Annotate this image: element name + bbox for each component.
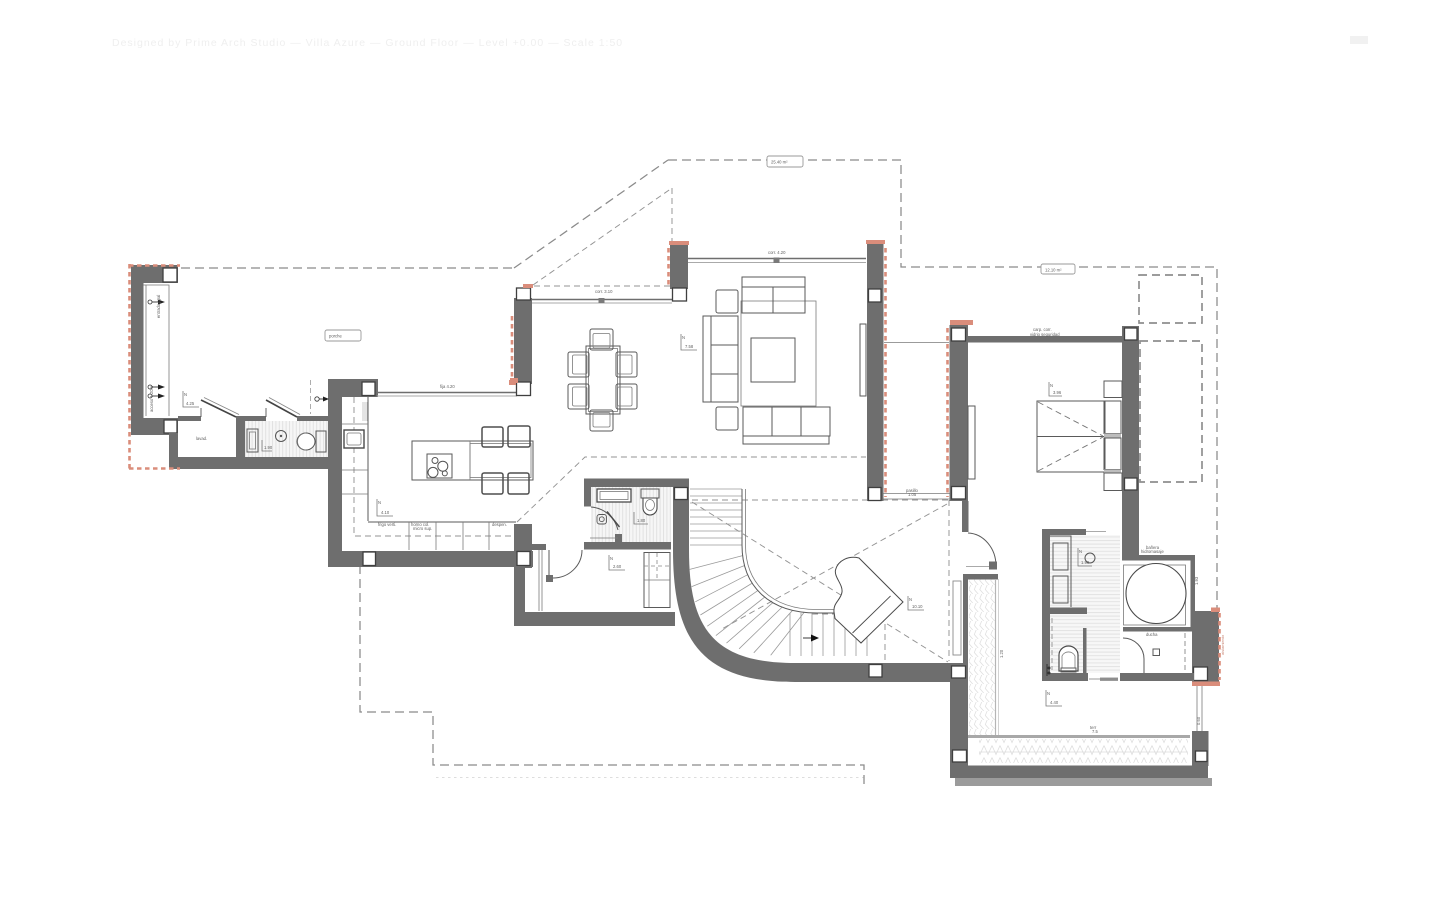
svg-text:7.5: 7.5 bbox=[1092, 729, 1098, 734]
svg-text:porche: porche bbox=[329, 334, 342, 339]
svg-text:7.58: 7.58 bbox=[685, 344, 694, 349]
svg-text:corr. 3.10: corr. 3.10 bbox=[595, 289, 613, 294]
svg-text:aislamiento: aislamiento bbox=[1220, 634, 1225, 655]
svg-text:12.10 m²: 12.10 m² bbox=[1045, 268, 1062, 273]
svg-text:25.40 m²: 25.40 m² bbox=[771, 160, 788, 165]
svg-text:hidromasaje: hidromasaje bbox=[1141, 549, 1164, 554]
svg-text:N: N bbox=[610, 556, 613, 561]
svg-text:frigo verti.: frigo verti. bbox=[378, 522, 396, 527]
svg-text:1.90: 1.90 bbox=[264, 445, 273, 450]
svg-text:0.60: 0.60 bbox=[1196, 716, 1201, 725]
svg-text:2.60: 2.60 bbox=[613, 564, 622, 569]
svg-text:despen.: despen. bbox=[492, 522, 507, 527]
svg-text:1.05: 1.05 bbox=[908, 492, 917, 497]
svg-text:Designed by Prime Arch Studio: Designed by Prime Arch Studio — Villa Az… bbox=[112, 37, 623, 49]
svg-text:N: N bbox=[1047, 691, 1050, 696]
svg-text:N: N bbox=[1050, 383, 1053, 388]
svg-text:micro sup.: micro sup. bbox=[413, 526, 432, 531]
svg-text:4.40: 4.40 bbox=[1050, 700, 1059, 705]
svg-text:1.20: 1.20 bbox=[999, 649, 1004, 658]
svg-text:N: N bbox=[1079, 549, 1082, 554]
svg-text:N: N bbox=[682, 335, 685, 340]
svg-text:N: N bbox=[378, 500, 381, 505]
svg-text:3.96: 3.96 bbox=[1053, 390, 1062, 395]
svg-text:1.90: 1.90 bbox=[1081, 560, 1090, 565]
svg-text:N: N bbox=[909, 597, 912, 602]
svg-text:4.25: 4.25 bbox=[186, 401, 195, 406]
svg-text:vidrio seguridad: vidrio seguridad bbox=[1030, 332, 1060, 337]
svg-text:entrada ppal: entrada ppal bbox=[156, 295, 161, 318]
svg-text:N: N bbox=[184, 392, 187, 397]
svg-text:lavad.: lavad. bbox=[196, 436, 207, 441]
svg-text:4.10: 4.10 bbox=[381, 510, 390, 515]
svg-text:corr. 4.20: corr. 4.20 bbox=[768, 250, 786, 255]
svg-text:acceso 1.20m: acceso 1.20m bbox=[149, 385, 154, 412]
svg-text:ducha: ducha bbox=[1146, 632, 1158, 637]
svg-text:fija 4.20: fija 4.20 bbox=[440, 384, 455, 389]
svg-text:1.93: 1.93 bbox=[1194, 576, 1199, 585]
svg-text:10.10: 10.10 bbox=[912, 604, 923, 609]
svg-text:1.80: 1.80 bbox=[637, 518, 646, 523]
